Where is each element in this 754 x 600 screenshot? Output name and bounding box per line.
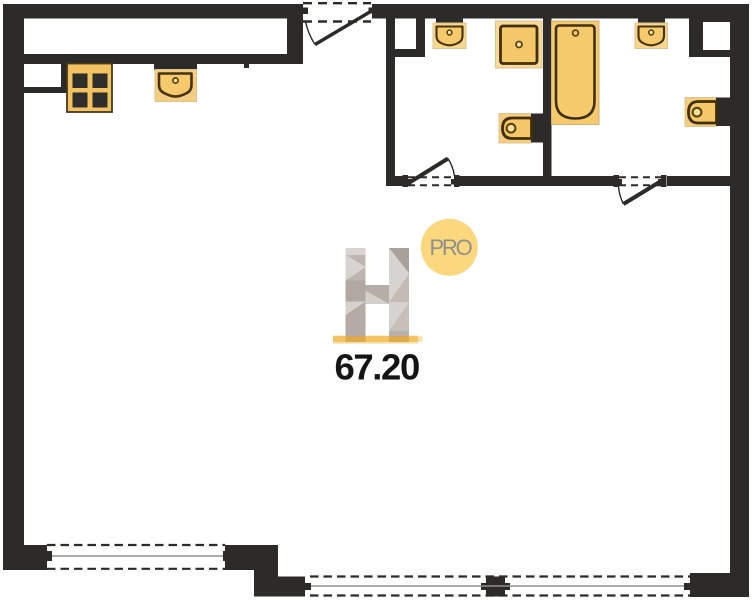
svg-text:67.20: 67.20 xyxy=(335,347,419,388)
svg-text:PRO: PRO xyxy=(429,235,472,260)
